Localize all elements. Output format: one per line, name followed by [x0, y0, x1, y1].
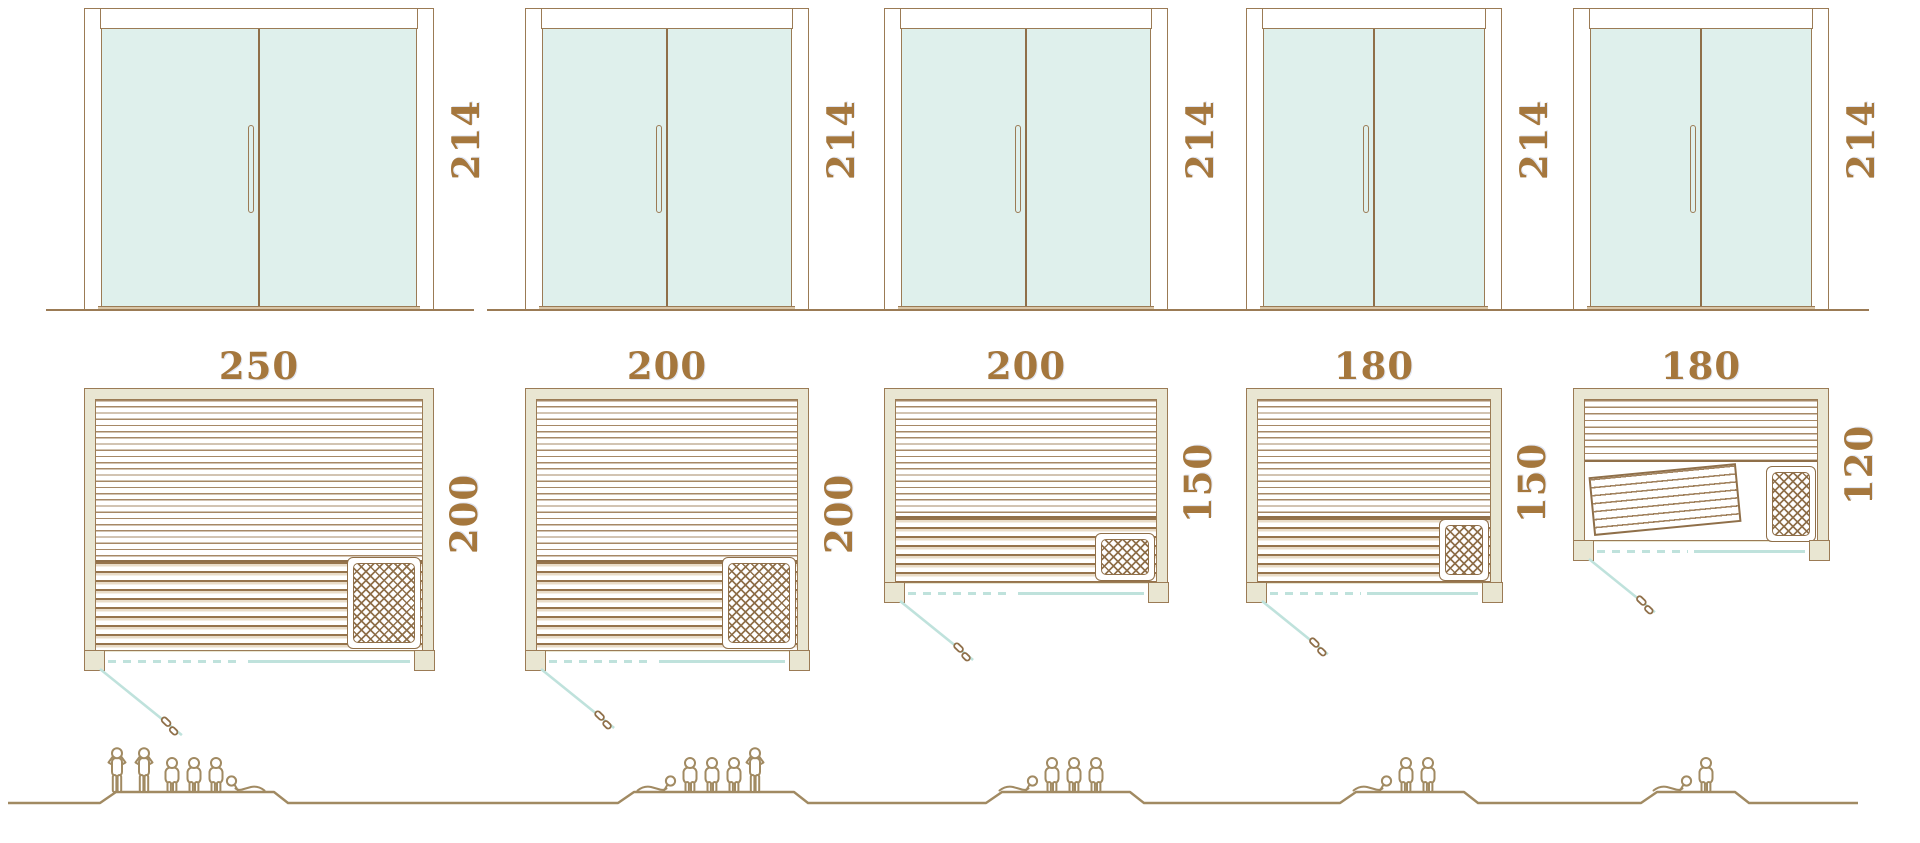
- ground-baseline: [1208, 309, 1542, 311]
- door-leaf-dashed-line: [908, 592, 1012, 595]
- ground-baseline: [846, 309, 1208, 311]
- plan-door-handle-icon: [952, 642, 972, 661]
- person-sit-icon: [1400, 758, 1413, 792]
- bench-boards: [1585, 400, 1817, 462]
- ground-baseline: [1535, 309, 1869, 311]
- door-glass: [900, 28, 1152, 307]
- door-frame-left: [884, 8, 902, 310]
- door-leaf-dashed-line: [108, 660, 242, 663]
- door-top-rail: [541, 8, 793, 29]
- person-stand-icon: [747, 748, 764, 792]
- door-swing-line: [900, 601, 973, 660]
- door-height-label: 214: [444, 100, 488, 180]
- ground-baseline: [487, 309, 849, 311]
- plan-width-label: 180: [1661, 344, 1741, 388]
- person-sit-icon: [1422, 758, 1435, 792]
- floor-plan-sauna-200x200: [525, 388, 809, 652]
- door-height-label: 214: [819, 100, 863, 180]
- door-height-label: 214: [1512, 100, 1556, 180]
- plan-width-label: 250: [219, 344, 299, 388]
- capacity-group-sauna-200x150: [1000, 758, 1103, 792]
- plan-interior: [1257, 399, 1491, 583]
- door-divider: [1025, 29, 1027, 306]
- door-divider: [1373, 29, 1375, 306]
- person-sit-icon: [188, 758, 201, 792]
- person-sit-icon: [1068, 758, 1081, 792]
- heater-icon: [347, 557, 421, 649]
- glass-front-line: [1694, 550, 1805, 553]
- ground-line: [8, 792, 1858, 803]
- person-sit-icon: [166, 758, 179, 792]
- heater-icon: [1439, 519, 1489, 581]
- door-height-label: 214: [1839, 100, 1883, 180]
- door-elevation-sauna-200x150: [884, 8, 1168, 310]
- heater-grid: [1101, 539, 1149, 575]
- plan-interior: [1584, 399, 1818, 541]
- capacity-group-sauna-250x200: [109, 748, 265, 792]
- door-glass: [1589, 28, 1813, 307]
- plan-depth-label: 200: [442, 474, 486, 554]
- heater-grid: [1445, 525, 1483, 575]
- floor-plan-sauna-180x150: [1246, 388, 1502, 584]
- capacity-group-sauna-200x200: [638, 748, 764, 792]
- ground-baseline: [46, 309, 474, 311]
- plan-interior: [95, 399, 423, 651]
- floor-plan-sauna-180x120: [1573, 388, 1829, 542]
- person-recline-icon: [1354, 776, 1392, 791]
- door-swing-line: [1589, 559, 1655, 612]
- capacity-group-sauna-180x150: [1354, 758, 1435, 792]
- door-post-left: [1573, 540, 1594, 561]
- heater-icon: [722, 557, 796, 649]
- person-recline-icon: [227, 776, 265, 791]
- heater-icon: [1766, 466, 1816, 542]
- plan-interior: [536, 399, 798, 651]
- person-recline-icon: [638, 776, 676, 791]
- plan-door-handle-icon: [593, 710, 613, 729]
- door-post-right: [789, 650, 810, 671]
- door-leaf-dashed-line: [549, 660, 653, 663]
- door-post-right: [1482, 582, 1503, 603]
- floor-plan-sauna-250x200: [84, 388, 434, 652]
- person-stand-icon: [109, 748, 126, 792]
- door-elevation-sauna-200x200: [525, 8, 809, 310]
- door-glass: [100, 28, 418, 307]
- door-glass: [1262, 28, 1486, 307]
- person-sit-icon: [1700, 758, 1713, 792]
- door-post-left: [884, 582, 905, 603]
- door-handle: [1690, 125, 1696, 213]
- door-glass: [541, 28, 793, 307]
- door-top-rail: [1589, 8, 1813, 29]
- plan-door-handle-icon: [1635, 595, 1655, 614]
- door-top-rail: [900, 8, 1152, 29]
- door-height-label: 214: [1178, 100, 1222, 180]
- person-sit-icon: [1090, 758, 1103, 792]
- door-swing-line: [1262, 601, 1328, 654]
- door-elevation-sauna-250x200: [84, 8, 434, 310]
- heater-grid: [1772, 472, 1810, 536]
- door-leaf-dashed-line: [1597, 550, 1688, 553]
- door-frame-left: [1573, 8, 1591, 310]
- door-handle: [1363, 125, 1369, 213]
- plan-width-label: 200: [986, 344, 1066, 388]
- door-elevation-sauna-180x150: [1246, 8, 1502, 310]
- person-sit-icon: [210, 758, 223, 792]
- glass-front-line: [248, 660, 411, 663]
- plan-depth-label: 200: [817, 474, 861, 554]
- floor-plan-sauna-200x150: [884, 388, 1168, 584]
- sauna-size-diagram: 214250200 214200200 214200150: [0, 0, 1920, 843]
- door-post-left: [1246, 582, 1267, 603]
- plan-door-handle-icon: [1308, 637, 1328, 656]
- door-top-rail: [1262, 8, 1486, 29]
- plan-width-label: 200: [627, 344, 707, 388]
- plan-depth-label: 120: [1837, 424, 1881, 504]
- person-recline-icon: [1654, 776, 1692, 791]
- door-top-rail: [100, 8, 418, 29]
- door-post-left: [84, 650, 105, 671]
- door-leaf-dashed-line: [1270, 592, 1361, 595]
- door-frame-right: [416, 8, 434, 310]
- door-post-right: [1809, 540, 1830, 561]
- glass-front-line: [659, 660, 785, 663]
- door-post-left: [525, 650, 546, 671]
- door-swing-line: [100, 669, 182, 735]
- door-post-right: [414, 650, 435, 671]
- heater-grid: [728, 563, 790, 643]
- person-sit-icon: [706, 758, 719, 792]
- door-swing-line: [541, 669, 614, 728]
- plan-interior: [895, 399, 1157, 583]
- capacity-group-sauna-180x120: [1654, 758, 1713, 792]
- door-frame-right: [1484, 8, 1502, 310]
- door-divider: [258, 29, 260, 306]
- glass-front-line: [1018, 592, 1144, 595]
- capacity-figures-layer: [109, 748, 1713, 792]
- door-handle: [656, 125, 662, 213]
- door-frame-left: [525, 8, 543, 310]
- door-elevation-sauna-180x120: [1573, 8, 1829, 310]
- door-divider: [666, 29, 668, 306]
- heater-grid: [353, 563, 415, 643]
- person-recline-icon: [1000, 776, 1038, 791]
- door-frame-left: [84, 8, 102, 310]
- door-frame-left: [1246, 8, 1264, 310]
- plan-depth-label: 150: [1510, 443, 1554, 523]
- person-sit-icon: [1046, 758, 1059, 792]
- door-post-right: [1148, 582, 1169, 603]
- door-handle: [1015, 125, 1021, 213]
- person-sit-icon: [684, 758, 697, 792]
- plan-door-handle-icon: [160, 716, 180, 735]
- door-handle: [248, 125, 254, 213]
- person-stand-icon: [136, 748, 153, 792]
- door-frame-right: [1811, 8, 1829, 310]
- glass-front-line: [1367, 592, 1478, 595]
- tilted-bench: [1589, 463, 1742, 536]
- plan-width-label: 180: [1334, 344, 1414, 388]
- door-frame-right: [1150, 8, 1168, 310]
- person-sit-icon: [728, 758, 741, 792]
- plan-depth-label: 150: [1176, 443, 1220, 523]
- heater-icon: [1095, 533, 1155, 581]
- door-divider: [1700, 29, 1702, 306]
- door-frame-right: [791, 8, 809, 310]
